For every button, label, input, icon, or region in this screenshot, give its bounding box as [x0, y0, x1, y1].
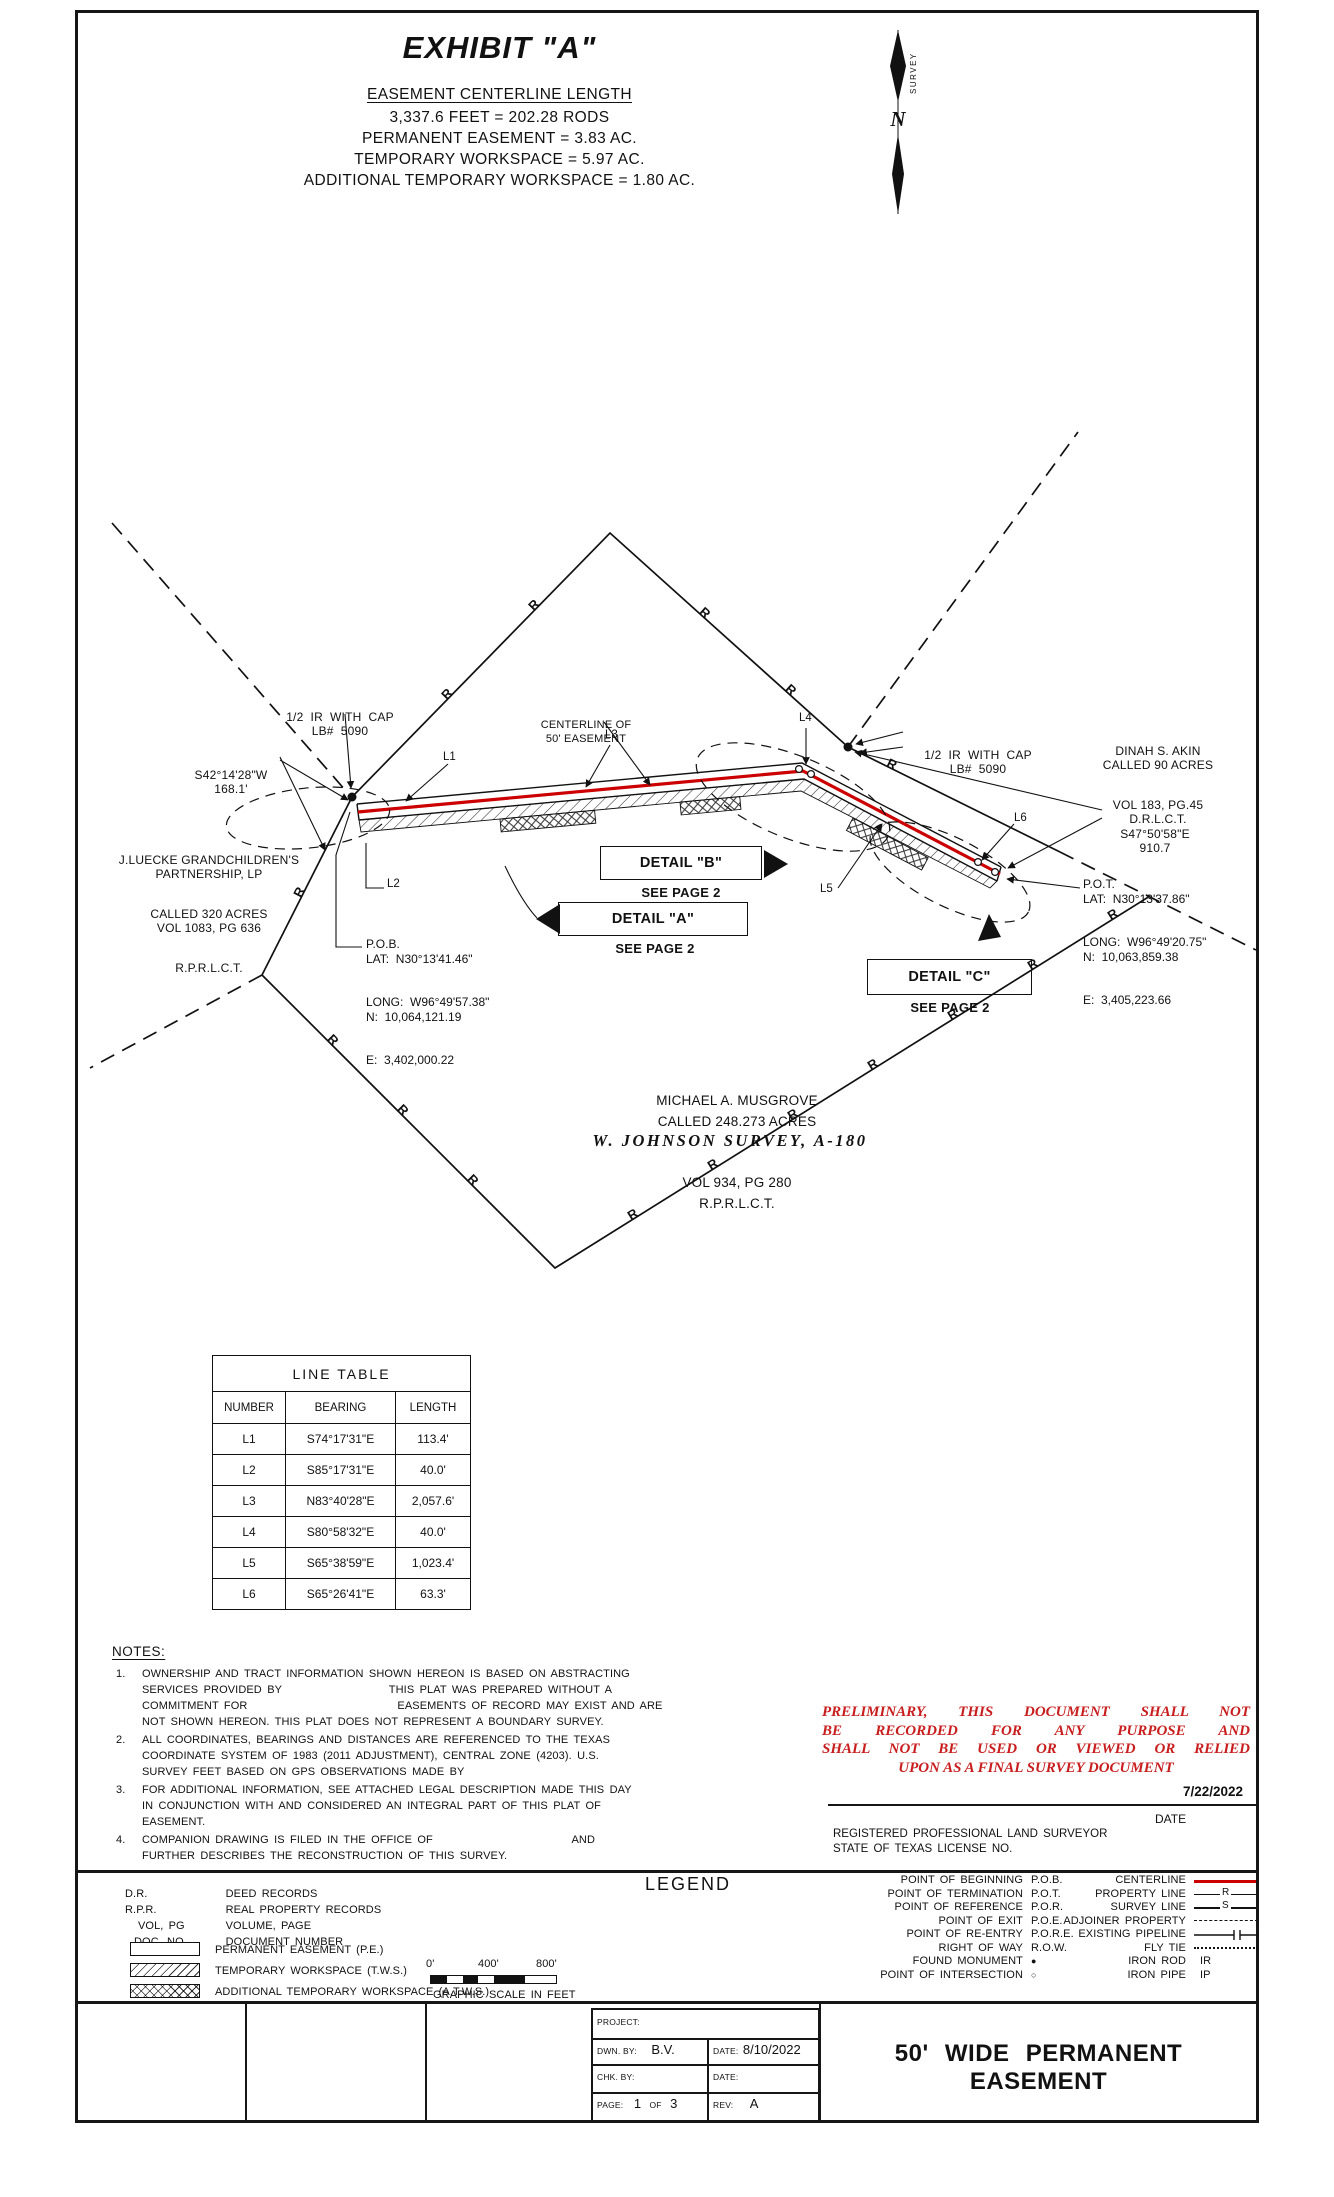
adjoiner-symbol — [1194, 1920, 1258, 1921]
line-tag-l4: L4 — [799, 712, 812, 724]
line-table-header: LENGTH — [396, 1392, 471, 1424]
r-line-marker: R — [465, 1171, 483, 1189]
r-line-marker: R — [865, 1055, 881, 1073]
summary-heading: EASEMENT CENTERLINE LENGTH — [77, 86, 922, 104]
atws-swatch — [130, 1984, 200, 1998]
line-table-header: BEARING — [286, 1392, 396, 1424]
note-item: 1. OWNERSHIP AND TRACT INFORMATION SHOWN… — [112, 1666, 582, 1730]
line-tag-l1: L1 — [443, 751, 456, 763]
date-label: DATE — [1155, 1812, 1186, 1826]
ir-cap-right-label: 1/2 IR WITH CAPLB# 5090 — [924, 722, 1032, 803]
detail-a-see: SEE PAGE 2 — [615, 941, 694, 956]
summary-line: ADDITIONAL TEMPORARY WORKSPACE = 1.80 AC… — [77, 172, 922, 190]
pot-label: P.O.T.LAT: N30°13'37.86" LONG: W96°49'20… — [1083, 848, 1206, 1037]
r-line-marker: R — [783, 681, 800, 699]
titleblock-vline — [245, 2001, 247, 2123]
north-survey-label: SURVEY — [909, 52, 918, 94]
scale-tick-0: 0' — [426, 1958, 434, 1970]
table-row: L1S74°17'31"E113.4' — [213, 1424, 471, 1455]
notes-heading: NOTES: — [112, 1644, 165, 1659]
scale-tick-800: 800' — [536, 1958, 557, 1970]
table-row: L5S65°38'59"E1,023.4' — [213, 1548, 471, 1579]
r-line-marker: R — [625, 1205, 641, 1223]
r-line-marker: R — [325, 1031, 343, 1049]
signature-line — [828, 1804, 1256, 1806]
line-tag-l6: L6 — [1014, 812, 1027, 824]
line-tag-l5: L5 — [820, 883, 833, 895]
date2-label: DATE: — [713, 2072, 738, 2082]
page-label: PAGE: — [597, 2100, 623, 2110]
rev-label: REV: — [713, 2100, 733, 2110]
legend-divider — [77, 1870, 1257, 1873]
rev-value: A — [750, 2096, 759, 2111]
centerline-symbol — [1194, 1880, 1256, 1883]
signature-date: 7/22/2022 — [1183, 1784, 1243, 1799]
note-item: 2. ALL COORDINATES, BEARINGS AND DISTANC… — [112, 1732, 582, 1780]
date-value: 8/10/2022 — [743, 2042, 801, 2057]
titleblock-fields: PROJECT: DWN. BY: B.V. DATE: 8/10/2022 C… — [591, 2008, 820, 2122]
line-tag-l3: L3 — [605, 729, 618, 741]
r-line-marker: R — [438, 685, 456, 703]
surveyor-license: STATE OF TEXAS LICENSE NO. — [833, 1843, 1012, 1855]
summary-line: TEMPORARY WORKSPACE = 5.97 AC. — [77, 151, 922, 169]
fly-tie-symbol — [1194, 1947, 1258, 1949]
detail-b-see: SEE PAGE 2 — [641, 885, 720, 900]
north-n-label: N — [889, 107, 906, 131]
pipeline-symbol — [1194, 1930, 1258, 1940]
sc ale-bar — [430, 1975, 557, 1984]
note-item: 3. FOR ADDITIONAL INFORMATION, SEE ATTAC… — [112, 1782, 582, 1830]
drawn-by-label: DWN. BY: — [597, 2046, 637, 2056]
r-line-marker: R — [697, 604, 714, 622]
luecke-parcel-label: J.LUECKE GRANDCHILDREN'SPARTNERSHIP, LP … — [119, 827, 299, 1003]
detail-b-box: DETAIL "B" — [600, 846, 762, 880]
r-line-marker: R — [395, 1101, 413, 1119]
line-table-header: NUMBER — [213, 1392, 286, 1424]
table-row: L2S85°17'31"E40.0' — [213, 1455, 471, 1486]
date-label: DATE: — [713, 2046, 738, 2056]
page-title: EXHIBIT "A" — [77, 30, 922, 66]
drawn-by-value: B.V. — [651, 2042, 674, 2057]
scale-tick-400: 400' — [478, 1958, 499, 1970]
summary-line: PERMANENT EASEMENT = 3.83 AC. — [77, 130, 922, 148]
ir-cap-left-label: 1/2 IR WITH CAPLB# 5090 — [286, 684, 394, 765]
bearing-west-label: S42°14'28"W168.1' — [195, 742, 268, 823]
tws-swatch-label: TEMPORARY WORKSPACE (T.W.S.) — [215, 1965, 407, 1977]
titleblock-divider — [77, 2001, 1257, 2004]
tws-swatch — [130, 1963, 200, 1977]
legend-heading: LEGEND — [645, 1874, 731, 1895]
scale-caption: GRAPHIC SCALE IN FEET — [433, 1989, 576, 2001]
pob-label: P.O.B.LAT: N30°13'41.46" LONG: W96°49'57… — [366, 908, 489, 1097]
table-row: L3N83°40'28"E2,057.6' — [213, 1486, 471, 1517]
survey-name-label: W. JOHNSON SURVEY, A-180 — [592, 1131, 867, 1151]
pe-swatch — [130, 1942, 200, 1956]
table-row: L4S80°58'32"E40.0' — [213, 1517, 471, 1548]
survey-plat-sheet: EXHIBIT "A" EASEMENT CENTERLINE LENGTH 3… — [0, 0, 1334, 2197]
summary-line: 3,337.6 FEET = 202.28 RODS — [77, 109, 922, 127]
titleblock-vline — [425, 2001, 427, 2123]
detail-c-see: SEE PAGE 2 — [910, 1000, 989, 1015]
checked-by-label: CHK. BY: — [597, 2072, 635, 2082]
project-label: PROJECT: — [597, 2017, 640, 2027]
musgrove-parcel-label: MICHAEL A. MUSGROVECALLED 248.273 ACRES … — [656, 1050, 818, 1255]
pe-swatch-label: PERMANENT EASEMENT (P.E.) — [215, 1944, 383, 1956]
preliminary-stamp: PRELIMINARY, THIS DOCUMENT SHALL NOT BE … — [822, 1703, 1250, 1777]
table-row: L6S65°26'41"E63.3' — [213, 1579, 471, 1610]
page-total: 3 — [670, 2096, 677, 2111]
line-tag-l2: L2 — [387, 878, 400, 890]
line-table: LINE TABLE NUMBER BEARING LENGTH L1S74°1… — [212, 1355, 471, 1610]
r-line-marker: R — [884, 755, 900, 773]
note-item: 4. COMPANION DRAWING IS FILED IN THE OFF… — [112, 1832, 582, 1864]
sheet-title: 50' WIDE PERMANENT EASEMENT — [820, 2040, 1257, 2096]
detail-a-box: DETAIL "A" — [558, 902, 748, 936]
page-number: 1 — [634, 2096, 641, 2111]
detail-c-box: DETAIL "C" — [867, 959, 1032, 995]
line-table-title: LINE TABLE — [213, 1356, 471, 1392]
r-line-marker: R — [525, 596, 543, 614]
north-arrow-icon: N SURVEY — [866, 24, 934, 219]
surveyor-title: REGISTERED PROFESSIONAL LAND SURVEYOR — [833, 1828, 1107, 1840]
